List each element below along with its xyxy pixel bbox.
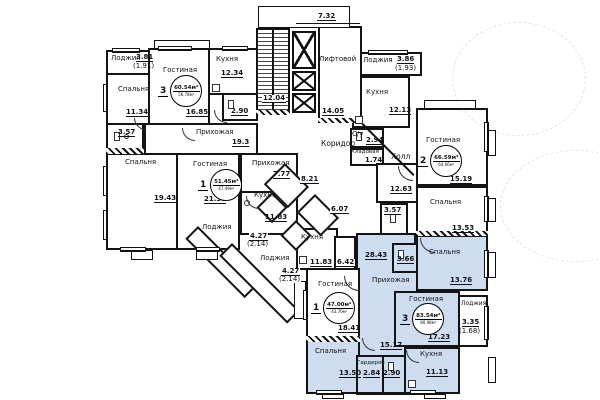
apt-c-bedroom-area: 13.53	[452, 225, 474, 233]
apt-c-loggia-area2: (1.93)	[395, 65, 416, 72]
apt-e-wc-area: 6.42	[336, 259, 355, 267]
apt-d-kitchen-label: Кухня	[420, 351, 442, 358]
apt-a-hall-area: 19.3	[232, 139, 249, 147]
apt-a-kitchen-area: 12.34	[221, 70, 243, 78]
window	[303, 290, 308, 320]
apt-c-living-area: 15.19	[450, 176, 472, 184]
apt-d-wc-area: 3.66	[397, 256, 414, 264]
apt-a-bedroom2-label: Спальня	[125, 159, 156, 166]
room-lift-hall	[318, 26, 362, 120]
apt-b-loggia1-area2: (2.14)	[246, 241, 269, 248]
hatched-wall	[306, 336, 360, 342]
apt-d-hall-label: Прихожая	[372, 277, 410, 284]
apt-c-wc2-area: 3.57	[384, 207, 401, 215]
window-box	[424, 100, 476, 109]
apt-d-bedroom2-label: Спальня	[315, 348, 346, 355]
apt-a-wc1-area: 3.57	[118, 129, 135, 137]
apt-d-bedroom2-area: 13.50	[339, 370, 361, 378]
apt-c-kitchen-area: 12.13	[389, 107, 411, 115]
apt-d-living-area: 17.23	[428, 334, 450, 342]
apt-b-hall-area: 7.77	[273, 171, 290, 179]
watermark-arc	[452, 22, 586, 136]
window	[120, 247, 146, 252]
apt-c-area-circle: 66.59м² 64.66м²	[430, 145, 462, 177]
corridor-label: Коридор	[321, 140, 355, 148]
apt-c-loggia-label: Лоджия	[363, 57, 392, 64]
watermark-arc	[500, 150, 600, 262]
apt-c-wc-label: С/у	[352, 131, 363, 138]
apt-e-kitchen-area: 11.83	[310, 259, 332, 267]
stove-icon	[355, 116, 363, 124]
apt-a-rooms-count: 3	[158, 86, 168, 97]
window	[103, 210, 108, 240]
apt-b-kitchen-area: 11.83	[265, 214, 287, 222]
toilet-icon	[390, 214, 396, 223]
hatched-wall	[106, 148, 144, 154]
apt-b-hall-label: Прихожая	[252, 160, 290, 167]
apt-a-living-label: Гостиная	[163, 67, 197, 74]
apt-a-hall-label: Прихожая	[196, 129, 234, 136]
window	[484, 122, 489, 152]
apt-d-hall-area: 28.43	[365, 252, 387, 260]
apt-e-stamp: 1 47.00м² 43.70м²	[311, 292, 355, 324]
apt-d-loggia-area2: (1.68)	[459, 328, 480, 335]
apt-a-loggia-area: 3.81	[136, 54, 153, 62]
apt-d-wardrobe-label: Гардероб	[357, 361, 385, 367]
apt-e-kitchen-label: Кухня	[301, 234, 323, 241]
apt-c-rooms-count: 2	[418, 156, 428, 167]
apt-e-area-circle: 47.00м² 43.70м²	[323, 292, 355, 324]
stove-icon	[212, 84, 220, 92]
window	[103, 84, 108, 112]
apt-b-loggia2-area2: (2.14)	[278, 276, 301, 283]
stove-icon	[299, 256, 307, 264]
apt-d-wc2-area: 2.90	[383, 370, 400, 378]
elevator-shaft	[292, 93, 316, 113]
floor-plan: Коридор Холл Лифтовой 14.05 12.04 7.32 Л…	[0, 0, 600, 400]
apt-d-loggia-label: Лоджия	[461, 301, 486, 307]
apt-b-wc2-area: 6.07	[330, 206, 349, 214]
apt-b-wc-area: 8.21	[300, 176, 319, 184]
apt-a-loggia-area2: (1.91)	[133, 63, 154, 70]
apt-c-kitchen-label: Кухня	[366, 89, 388, 96]
window-box	[488, 198, 496, 222]
apt-b-loggia1-label: Лоджия	[202, 224, 231, 231]
window	[484, 306, 489, 340]
window	[196, 247, 220, 252]
window-box	[488, 357, 496, 383]
apt-a-bedroom1-label: Спальня	[118, 86, 149, 93]
apt-c-loggia-area: 3.86	[397, 56, 414, 64]
apt-a-bedroom2-area: 19.43	[154, 195, 176, 203]
lift-room-label: Лифтовой	[319, 56, 356, 63]
apt-b-area-circle: 51.45м² 47.49м²	[210, 169, 242, 201]
apt-a-wc2-area: 2.90	[231, 108, 248, 116]
apt-c-bedroom-label: Спальня	[430, 199, 461, 206]
elevator-shaft	[292, 31, 316, 69]
window	[103, 166, 108, 196]
apt-d-loggia-area: 3.35	[462, 319, 479, 327]
window	[410, 390, 436, 395]
apt-d-rooms-count: 3	[400, 314, 410, 325]
door-arc	[214, 110, 227, 123]
apt-c-storage-label: Кладовая	[351, 150, 379, 156]
window-box	[488, 252, 496, 278]
window	[484, 196, 489, 222]
dimension-line	[296, 23, 360, 24]
apt-c-wc-area: 2.94	[366, 137, 383, 145]
apt-b-kitchen-label: Кухня	[254, 192, 276, 199]
apt-b-rooms-count: 1	[198, 180, 208, 191]
apt-d-kitchen-area: 11.13	[426, 369, 448, 377]
apt-a-living-area: 16.85	[186, 109, 208, 117]
apt-d-area-circle: 83.54м² 80.98м²	[412, 303, 444, 335]
apt-d-bedroom1-label: Спальня	[429, 249, 460, 256]
apt-e-rooms-count: 1	[311, 303, 321, 314]
elevator-shaft	[292, 71, 316, 91]
apt-c-storage-area: 1.74	[365, 157, 382, 165]
apt-c-living-label: Гостиная	[426, 137, 460, 144]
apt-a-stamp: 3 60.54м² 56.78м²	[158, 75, 202, 107]
apt-a-bedroom1-area: 11.34	[126, 109, 148, 117]
window-box	[488, 130, 496, 156]
window	[484, 250, 489, 278]
lift-area: 14.05	[322, 108, 344, 116]
apt-a-area-circle: 60.54м² 56.78м²	[170, 75, 202, 107]
apt-e-living-label: Гостиная	[318, 281, 352, 288]
apt-c-room-area: 12.63	[390, 186, 412, 194]
stairs-area: 12.04	[262, 95, 286, 103]
apt-e-living-area: 18.41	[338, 325, 360, 333]
apt-d-stamp: 3 83.54м² 80.98м²	[400, 303, 444, 335]
window	[158, 46, 192, 51]
hall-label: Холл	[391, 153, 410, 161]
apt-d-living-label: Гостиная	[409, 296, 443, 303]
apt-a-kitchen-label: Кухня	[216, 56, 238, 63]
apt-b-stamp: 1 51.45м² 47.49м²	[198, 169, 242, 201]
window	[222, 46, 248, 51]
apt-b-loggia2-label: Лоджия	[260, 255, 289, 262]
apt-b-living-label: Гостиная	[193, 161, 227, 168]
apt-d-hall-area2: 15.17	[380, 342, 402, 350]
apt-d-wardrobe-area: 2.84	[363, 370, 380, 378]
window	[316, 390, 342, 395]
apt-d-bedroom1-area: 13.76	[450, 277, 472, 285]
stove-icon	[408, 380, 416, 388]
apt-c-stamp: 2 66.59м² 64.66м²	[418, 145, 462, 177]
hatched-wall	[256, 110, 290, 115]
top-dimension: 7.32	[317, 13, 336, 21]
